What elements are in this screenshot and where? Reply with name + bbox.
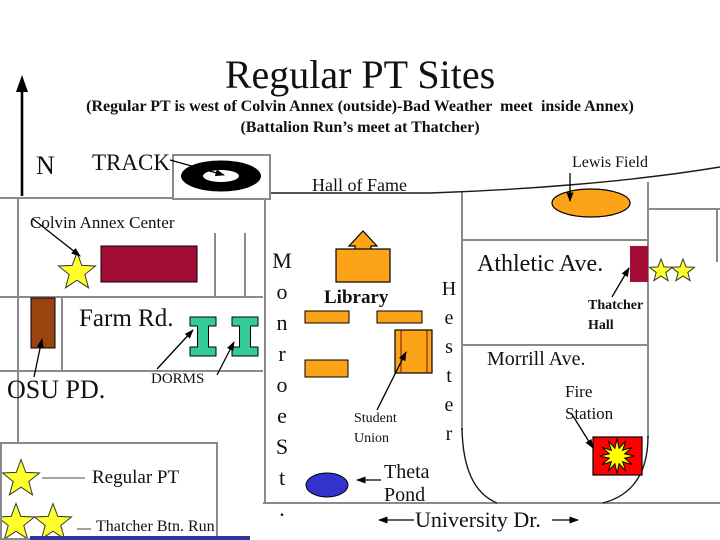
label-colvin-annex: Colvin Annex Center [30, 212, 174, 233]
campus-building-1 [305, 311, 349, 323]
label-hester-st: Hester [436, 278, 461, 452]
thatcher-hall-building [630, 246, 648, 282]
label-morrill-ave: Morrill Ave. [487, 347, 586, 372]
arrow-thatcher [612, 268, 629, 297]
colvin-annex-building [101, 246, 197, 282]
slide-subtitle-2: (Battalion Run’s meet at Thatcher) [0, 118, 720, 138]
library-building [336, 249, 390, 282]
osu-pd-building [31, 298, 55, 348]
dorm-building-1 [190, 317, 216, 356]
campus-building-3 [305, 360, 348, 377]
label-farm-rd: Farm Rd. [79, 303, 173, 334]
theta-pond-shape [306, 473, 348, 497]
library-roof-arrow-icon [349, 231, 377, 250]
slide-subtitle-1: (Regular PT is west of Colvin Annex (out… [0, 97, 720, 117]
legend-star-thatcher-icon-2 [35, 504, 72, 539]
road-corner-left [462, 428, 497, 503]
arrow-dorms-1 [157, 330, 193, 369]
label-theta-pond: Theta Pond [384, 461, 430, 507]
legend-star-thatcher-icon-1 [0, 504, 35, 539]
label-track: TRACK [92, 149, 170, 178]
dorm-building-2 [232, 317, 258, 356]
label-university-dr: University Dr. [415, 506, 541, 534]
legend-star-regular-icon [3, 460, 40, 495]
label-monroe-st: MonroeSt. [268, 248, 296, 527]
thatcher-star-icon-1 [650, 259, 673, 281]
legend-label-thatcher-run: Thatcher Btn. Run [96, 517, 215, 537]
label-fire-station: Fire Station [565, 381, 613, 425]
slide-title: Regular PT Sites [0, 50, 720, 100]
label-lewis-field: Lewis Field [572, 153, 648, 173]
track-oval-infield [203, 170, 239, 182]
lewis-field-shape [552, 189, 630, 217]
north-label: N [36, 150, 55, 183]
label-thatcher-hall: Thatcher Hall [588, 296, 643, 337]
curved-roads [265, 167, 720, 503]
regular-pt-star-icon [59, 253, 96, 288]
label-student-union: Student Union [354, 409, 397, 448]
legend-label-regular-pt: Regular PT [92, 466, 179, 490]
slide-footer-bar [30, 536, 250, 540]
student-union-building [395, 330, 432, 373]
thatcher-star-icon-2 [672, 259, 695, 281]
label-library: Library [324, 286, 388, 310]
label-dorms: DORMS [151, 370, 204, 389]
arrow-student-union [377, 352, 406, 410]
label-hall-of-fame: Hall of Fame [312, 174, 407, 197]
label-osu-pd: OSU PD. [7, 374, 105, 407]
slide-canvas: Regular PT Sites (Regular PT is west of … [0, 0, 720, 540]
campus-building-2 [377, 311, 422, 323]
label-athletic-ave: Athletic Ave. [477, 249, 603, 279]
